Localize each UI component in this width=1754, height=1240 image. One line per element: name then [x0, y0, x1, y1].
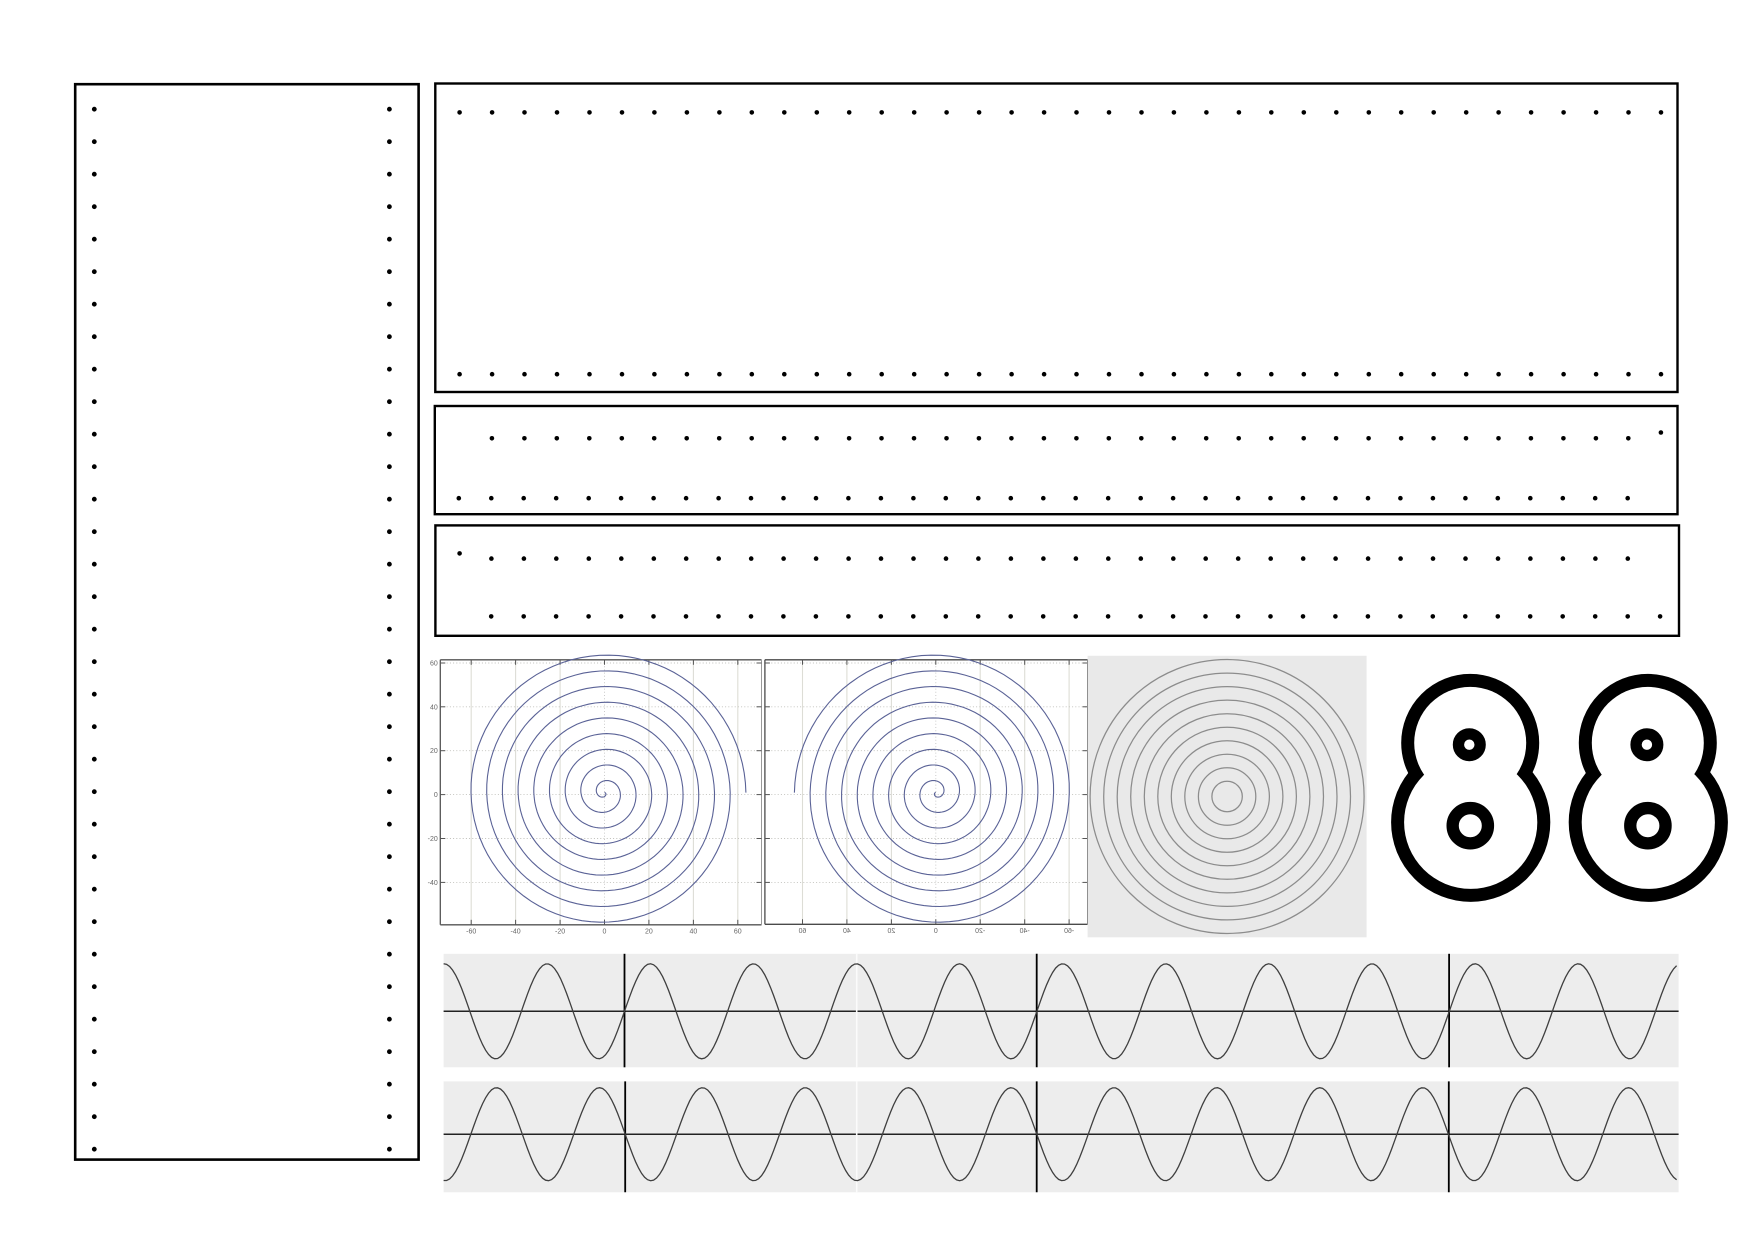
- svg-text:0: 0: [603, 928, 607, 935]
- svg-text:-20: -20: [975, 928, 985, 935]
- svg-text:0: 0: [434, 792, 438, 799]
- svg-text:60: 60: [734, 928, 742, 935]
- svg-text:-60: -60: [1064, 928, 1074, 935]
- svg-text:-60: -60: [466, 928, 476, 935]
- svg-text:-20: -20: [555, 928, 565, 935]
- svg-text:-40: -40: [1020, 928, 1030, 935]
- svg-text:40: 40: [843, 928, 851, 935]
- svg-text:0: 0: [934, 928, 938, 935]
- svg-text:-40: -40: [511, 928, 521, 935]
- svg-text:-40: -40: [428, 880, 438, 887]
- svg-text:20: 20: [430, 748, 438, 755]
- svg-text:-20: -20: [428, 836, 438, 843]
- svg-text:60: 60: [430, 661, 438, 668]
- svg-text:60: 60: [799, 928, 807, 935]
- svg-text:20: 20: [887, 928, 895, 935]
- svg-text:40: 40: [690, 928, 698, 935]
- svg-text:40: 40: [430, 704, 438, 711]
- svg-text:20: 20: [645, 928, 653, 935]
